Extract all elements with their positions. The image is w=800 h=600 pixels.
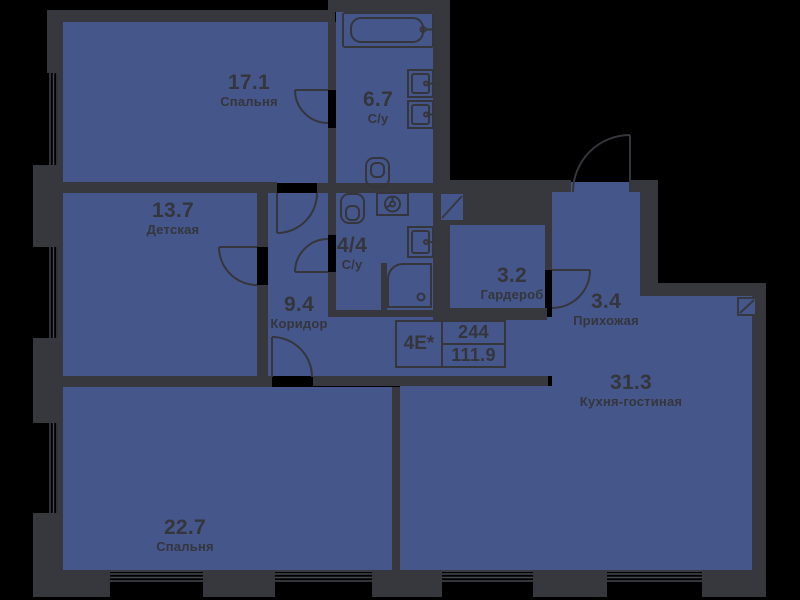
wall: [63, 376, 272, 387]
wall: [33, 338, 47, 423]
room-bedroom-2-floor: [63, 387, 392, 570]
unit-type: 4E*: [397, 322, 443, 366]
wall: [640, 180, 658, 296]
entry-threshold: [571, 182, 630, 192]
wall: [545, 225, 552, 270]
wall: [392, 387, 400, 570]
wall: [63, 182, 277, 193]
wall: [317, 183, 450, 193]
floor-plan: 17.1 Спальня 6.7 С/у 13.7 Детская 4/4 С/…: [0, 0, 800, 600]
wall: [328, 22, 336, 90]
wall: [33, 165, 47, 247]
wall: [313, 376, 548, 386]
window: [33, 247, 58, 338]
wall: [752, 283, 766, 570]
shower-screen-wall: [381, 263, 387, 317]
wall: [433, 308, 547, 320]
wall: [328, 310, 433, 317]
room-wardrobe-floor: [450, 225, 545, 308]
wall: [433, 0, 450, 310]
room-kids-room-floor: [63, 193, 257, 376]
window: [33, 423, 58, 513]
window: [33, 73, 58, 165]
window: [607, 572, 702, 598]
wall: [257, 193, 268, 247]
wall: [552, 180, 571, 192]
unit-total-area: 111.9: [443, 345, 504, 366]
wall: [257, 285, 268, 377]
wall: [328, 193, 336, 235]
room-kitchen-living-floor-2: [400, 386, 552, 570]
room-bedroom-1-floor: [63, 22, 328, 183]
wall: [33, 513, 47, 570]
unit-number: 244: [443, 322, 504, 345]
wall: [328, 0, 450, 12]
floor-plan-drawing: [0, 0, 800, 600]
window: [275, 572, 372, 598]
window: [442, 572, 533, 598]
wall: [658, 283, 752, 296]
room-kitchen-living-floor: [552, 296, 752, 570]
window: [110, 572, 203, 598]
unit-info-table: 4E* 244 111.9: [395, 320, 506, 368]
unit-info-right-column: 244 111.9: [443, 322, 504, 366]
wall: [47, 10, 335, 22]
